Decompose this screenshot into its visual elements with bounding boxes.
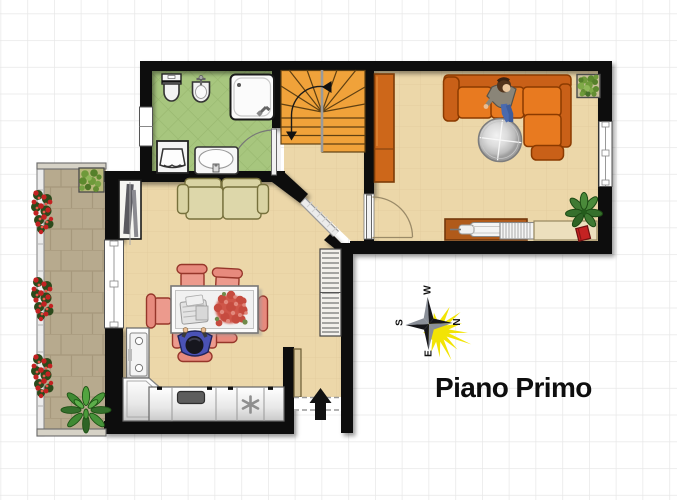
svg-text:Piano Primo: Piano Primo <box>435 372 592 403</box>
svg-text:S: S <box>395 319 406 326</box>
svg-text:N: N <box>452 318 463 325</box>
svg-text:W: W <box>423 285 434 295</box>
svg-text:E: E <box>424 350 435 357</box>
